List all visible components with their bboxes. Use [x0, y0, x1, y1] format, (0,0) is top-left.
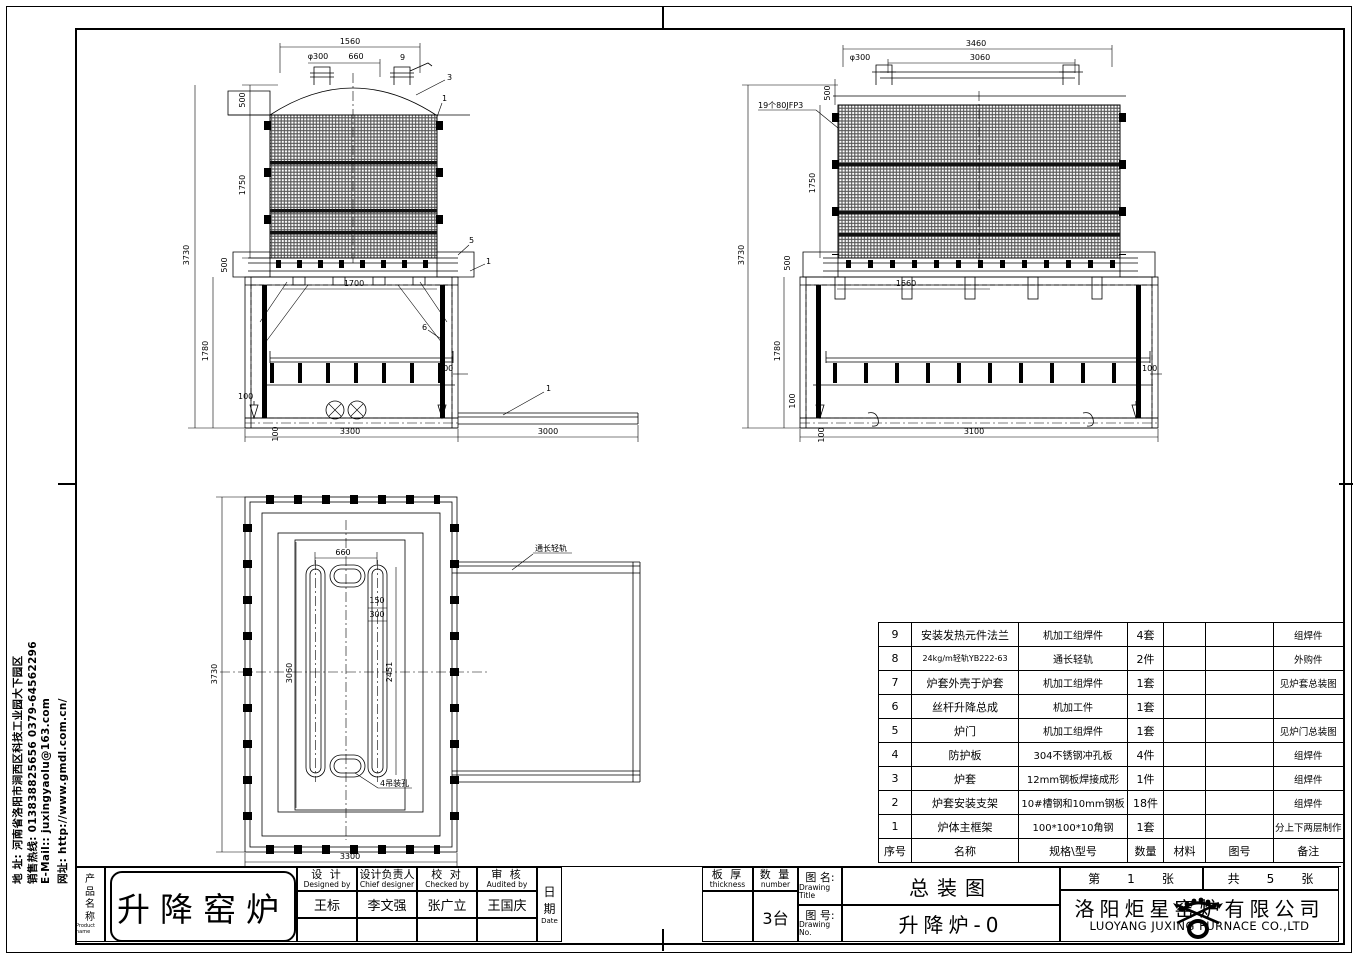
thickness-value — [702, 891, 753, 942]
dim-label: 660 — [335, 548, 350, 557]
auditor-name: 王国庆 — [477, 891, 537, 918]
thickness-header: 板 厚thickness — [702, 867, 753, 891]
role-empty-row — [297, 918, 357, 942]
dim-label: 3060 — [285, 663, 294, 683]
dim-label: 3300 — [340, 427, 360, 436]
product-name-cell: 升降窑炉 — [105, 867, 297, 942]
plan-outline — [245, 497, 457, 852]
dim-label: 1560 — [340, 37, 360, 46]
lug-note: 4吊装孔 — [380, 778, 409, 788]
hanger-posts — [835, 277, 1102, 299]
drawing-no-label: 图 号:Drawing No. — [798, 905, 842, 942]
dim-label: 500 — [783, 255, 792, 270]
centering-mark-right — [1339, 483, 1353, 485]
top-stub-left — [310, 67, 334, 85]
role-header-checked: 校 对Checked by — [417, 867, 477, 891]
bom-table: 9安装发热元件法兰机加工组焊件4套组焊件 824kg/m轻轨YB222-63通长… — [878, 622, 1344, 863]
quantity-header: 数 量number — [753, 867, 798, 891]
dim-label: 100 — [238, 392, 253, 401]
contact-email: E-Mail:: juxingyaolu@163.com — [40, 572, 55, 884]
dim-label: 660 — [348, 52, 363, 61]
role-header-designed: 设 计Designed by — [297, 867, 357, 891]
top-stub-right — [390, 63, 432, 85]
contact-hotline: 销售热线: 013838825656 0379-64562296 — [25, 572, 40, 884]
jacket-mesh — [270, 115, 437, 258]
drawing-title-label: 图 名:Drawing Title — [798, 867, 842, 905]
bom-row: 1炉体主框架100*100*10角钢1套分上下两层制作 — [879, 815, 1344, 839]
floor-rail — [458, 413, 638, 424]
designer-name: 王标 — [297, 891, 357, 918]
plan-view-drawing: 660 150 300 3060 2451 3730 3300 4吊装孔 通长轻… — [200, 490, 660, 870]
company-logo — [1169, 893, 1231, 939]
dim-label: 100 — [438, 364, 453, 373]
product-label-cell: 产品名称 Product name — [75, 867, 105, 942]
contact-website: 网址: http://www.gmdl.com.cn/ — [55, 572, 70, 884]
jacket-note: 19个80JFP3 — [758, 101, 803, 110]
dim-label: 3000 — [538, 427, 558, 436]
balloon-label: 5 — [469, 236, 474, 245]
role-header-audited: 审 核Audited by — [477, 867, 537, 891]
dim-label: φ300 — [308, 52, 329, 61]
title-block: 产品名称 Product name 升降窑炉 设 计Designed by 设计… — [75, 866, 1341, 941]
side-view-drawing: 3460 3060 φ300 19个80JFP3 500 1750 3730 — [738, 33, 1178, 457]
balloon-label: 9 — [400, 53, 405, 62]
dim-label: 500 — [823, 85, 832, 100]
dim-label: 3730 — [737, 245, 746, 265]
product-name: 升降窑炉 — [117, 883, 289, 931]
dim-label: 1750 — [808, 173, 817, 193]
dim-label: 3460 — [966, 39, 986, 48]
centering-mark-left — [58, 483, 77, 485]
dim-label: 1780 — [773, 341, 782, 361]
balloon-label: 3 — [447, 73, 452, 82]
balloon-label: 1 — [546, 384, 551, 393]
role-empty-row — [357, 918, 417, 942]
product-label-cn: 产品名称 — [84, 874, 96, 924]
company-cell: 洛阳炬星窑炉有限公司 LUOYANG JUXING FURNACE CO.,LT… — [1060, 890, 1339, 942]
checker-name: 张广立 — [417, 891, 477, 918]
product-label-en: Product name — [76, 924, 104, 935]
contact-address: 地 址: 河南省洛阳市涧西区科技工业园大下园区 — [10, 572, 25, 884]
base-band — [800, 401, 1158, 428]
base-band — [245, 401, 458, 428]
role-empty-row — [417, 918, 477, 942]
dim-label: 1700 — [344, 279, 364, 288]
role-empty-row — [477, 918, 537, 942]
dim-label: 2451 — [385, 662, 394, 682]
bom-row: 5炉门机加工组焊件1套见炉门总装图 — [879, 719, 1344, 743]
bom-row: 2炉套安装支架10#槽钢和10mm钢板18件组焊件 — [879, 791, 1344, 815]
rail-note: 通长轻轨 — [535, 543, 567, 553]
centering-mark-top — [662, 6, 664, 28]
dim-label: 100 — [817, 427, 826, 442]
lower-frame — [800, 277, 1158, 428]
sheet-total-cell: 共5张 — [1203, 867, 1339, 890]
dim-label: 3730 — [182, 245, 191, 265]
front-view-drawing: 1560 φ300 660 9 3 1 500 1750 3730 — [158, 33, 658, 457]
dim-label: 3300 — [340, 852, 360, 861]
top-rail — [872, 65, 1083, 85]
dim-label: 300 — [369, 610, 384, 619]
dim-label: 500 — [220, 257, 229, 272]
balloon-label: 1 — [486, 257, 491, 266]
dim-label: 100 — [788, 393, 797, 408]
sheet-number-cell: 第1张 — [1060, 867, 1203, 890]
chief-designer-name: 李文强 — [357, 891, 417, 918]
dim-label: 1660 — [896, 279, 916, 288]
bom-row: 9安装发热元件法兰机加工组焊件4套组焊件 — [879, 623, 1344, 647]
dim-label: 3100 — [964, 427, 984, 436]
bom-row: 6丝杆升降总成机加工件1套 — [879, 695, 1344, 719]
dim-label: 100 — [271, 426, 280, 441]
dim-label: 3730 — [210, 664, 219, 684]
dim-label: 1750 — [238, 175, 247, 195]
quantity-value: 3台 — [753, 891, 798, 942]
bom-row: 3炉套12mm钢板焊接成形1件组焊件 — [879, 767, 1344, 791]
dim-label: φ300 — [850, 53, 871, 62]
drawing-no-value: 升降炉-0 — [842, 905, 1060, 942]
dim-label: 1780 — [201, 341, 210, 361]
balloon-label: 6 — [422, 323, 427, 332]
lower-frame — [245, 277, 458, 428]
dim-label: 150 — [369, 596, 384, 605]
bom-header-row: 序号名称规格\型号数量材料图号备注 — [879, 839, 1344, 863]
drawing-title-value: 总装图 — [842, 867, 1060, 905]
bom-row: 4防护板304不锈钢冲孔板4件组焊件 — [879, 743, 1344, 767]
drawing-sheet: 地 址: 河南省洛阳市涧西区科技工业园大下园区 销售热线: 0138388256… — [0, 0, 1356, 957]
date-cell: 日期 Date — [537, 867, 562, 942]
hearth-assembly — [263, 351, 455, 385]
dim-label: 100 — [1142, 364, 1157, 373]
dim-label: 3060 — [970, 53, 990, 62]
dim-label: 500 — [238, 92, 247, 107]
bom-row: 7炉套外壳于炉套机加工组焊件1套见炉套总装图 — [879, 671, 1344, 695]
spacer-cell — [562, 867, 702, 942]
role-header-chief: 设计负责人Chief designer — [357, 867, 417, 891]
balloon-label: 1 — [442, 94, 447, 103]
bom-row: 824kg/m轻轨YB222-63通长轻轨2件外购件 — [879, 647, 1344, 671]
